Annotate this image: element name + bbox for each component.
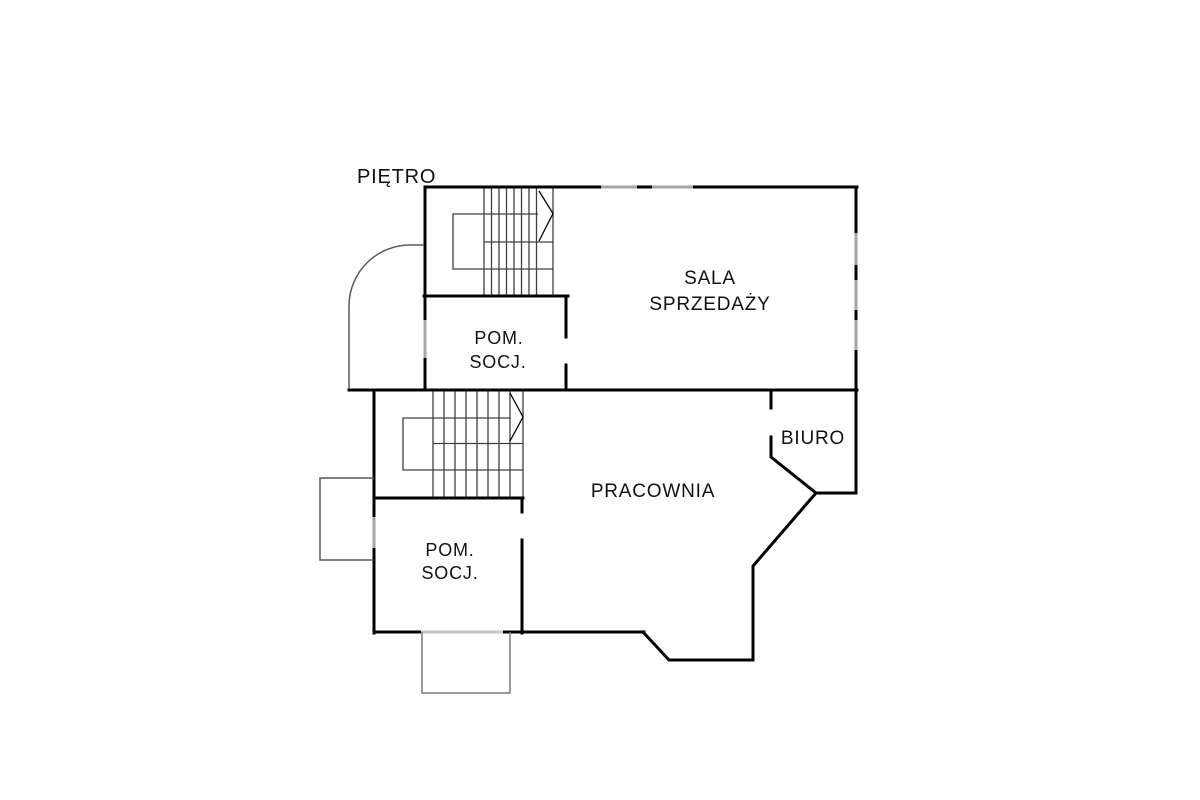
room-label-sala-line1: SALA xyxy=(684,268,736,289)
left-annex-outline xyxy=(320,478,374,560)
stair-direction-arrow-icon xyxy=(539,191,553,241)
floor-plan: PIĘTRO xyxy=(0,0,1200,800)
walls xyxy=(349,187,857,660)
room-label-pom-socj-lower-line1: POM. xyxy=(425,540,474,560)
room-labels: SALA SPRZEDAŻY POM. SOCJ. BIURO PRACOWNI… xyxy=(421,268,845,583)
wall-under-middle-stairs xyxy=(374,498,523,512)
room-label-pracownia: PRACOWNIA xyxy=(591,481,715,502)
stair-landing-upper xyxy=(453,214,553,269)
staircase-upper xyxy=(453,189,553,295)
room-label-pom-socj-lower-line2: SOCJ. xyxy=(421,563,478,583)
rounded-annex-outline xyxy=(349,245,424,389)
room-label-biuro: BIURO xyxy=(781,428,845,449)
staircase-lower xyxy=(403,392,523,497)
room-label-sala-line2: SPRZEDAŻY xyxy=(649,294,770,315)
floor-plan-page: PIĘTRO xyxy=(0,0,1200,800)
stair-direction-arrow-icon xyxy=(510,393,523,441)
stair-landing-lower xyxy=(403,418,523,470)
room-label-pom-socj-upper-line1: POM. xyxy=(474,328,523,348)
room-label-pom-socj-upper-line2: SOCJ. xyxy=(469,352,526,372)
wall-pracownia-outline xyxy=(643,493,856,660)
floor-title: PIĘTRO xyxy=(357,166,436,188)
bottom-annex-outline xyxy=(422,632,510,693)
